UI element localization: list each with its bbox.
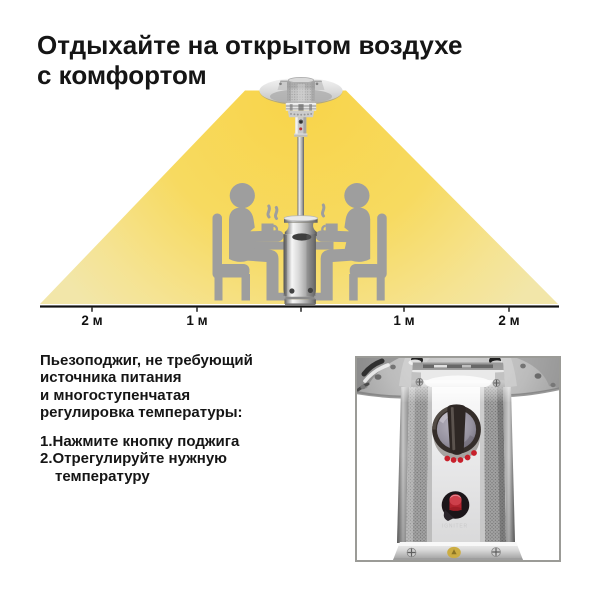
svg-text:IGNITER: IGNITER [442, 524, 468, 530]
